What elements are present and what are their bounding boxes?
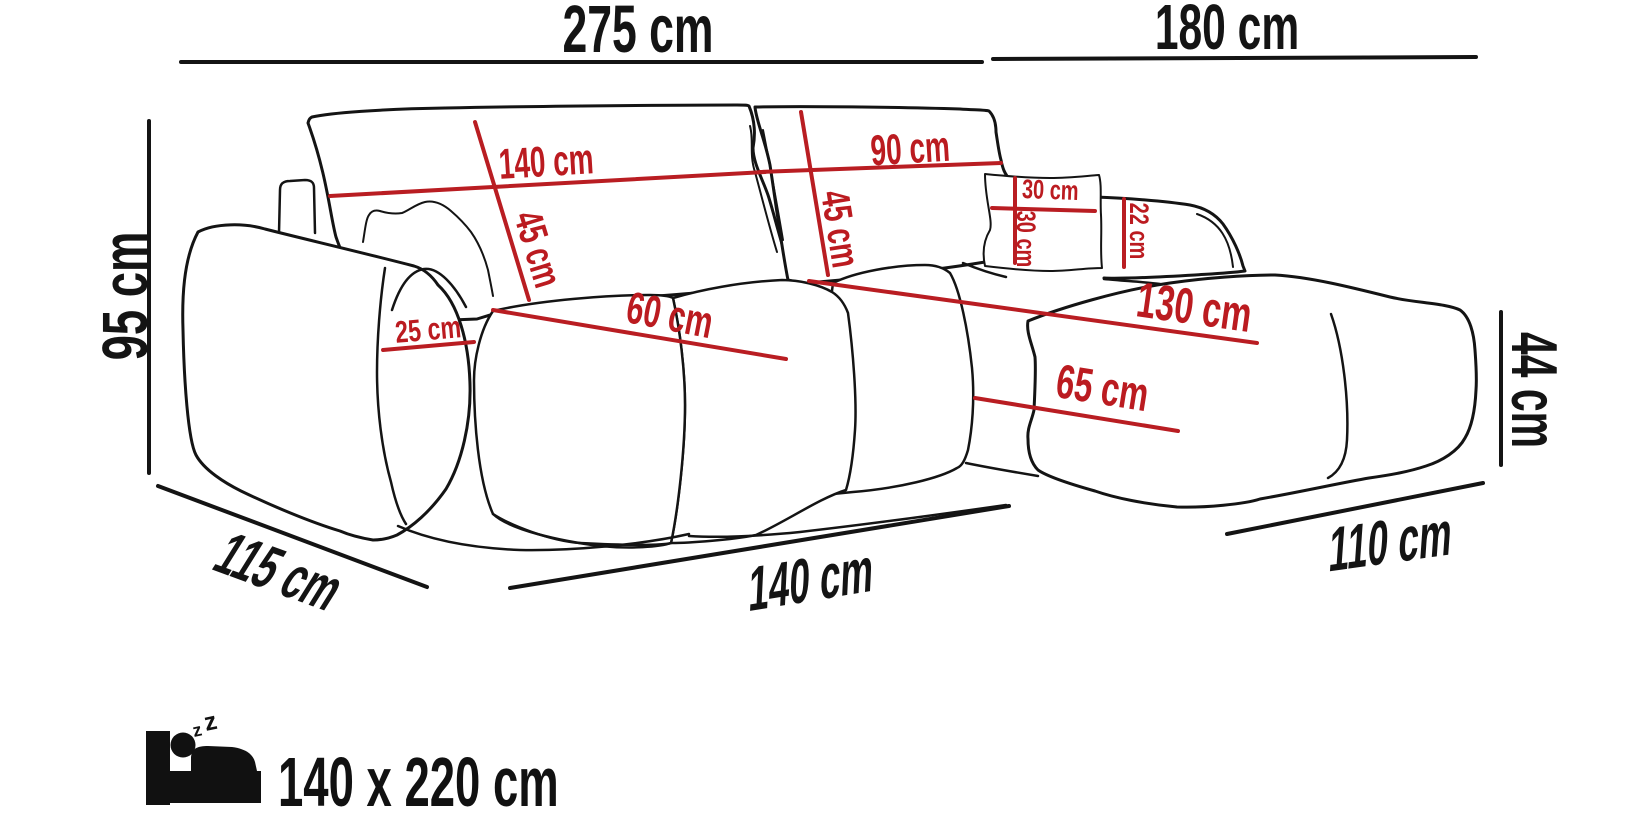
- svg-text:140 x 220 cm: 140 x 220 cm: [278, 743, 559, 813]
- svg-text:25 cm: 25 cm: [394, 309, 463, 350]
- svg-text:22 cm: 22 cm: [1123, 203, 1154, 260]
- svg-text:180 cm: 180 cm: [1155, 0, 1299, 63]
- svg-text:95 cm: 95 cm: [89, 232, 160, 361]
- svg-text:140 cm: 140 cm: [497, 134, 595, 188]
- svg-text:44 cm: 44 cm: [1498, 332, 1571, 448]
- svg-text:30 cm: 30 cm: [1021, 174, 1079, 207]
- svg-text:30 cm: 30 cm: [1010, 211, 1041, 268]
- svg-text:90 cm: 90 cm: [869, 122, 951, 175]
- svg-text:275 cm: 275 cm: [562, 0, 713, 67]
